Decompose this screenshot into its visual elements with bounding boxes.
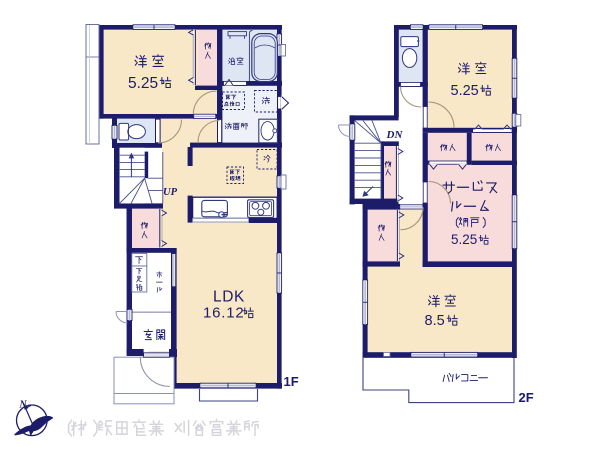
svg-text:8.5: 8.5 [425, 313, 445, 329]
svg-text:DN: DN [386, 129, 404, 141]
svg-text:2F: 2F [519, 390, 534, 405]
svg-text:5.25: 5.25 [451, 232, 477, 247]
svg-text:1F: 1F [284, 374, 299, 389]
svg-text:5.25: 5.25 [451, 83, 479, 99]
svg-text:N: N [19, 400, 28, 411]
svg-text:5.25: 5.25 [128, 75, 158, 92]
svg-text:UP: UP [163, 187, 178, 198]
svg-text:LDK: LDK [213, 289, 245, 306]
svg-text:16.12: 16.12 [203, 305, 245, 322]
